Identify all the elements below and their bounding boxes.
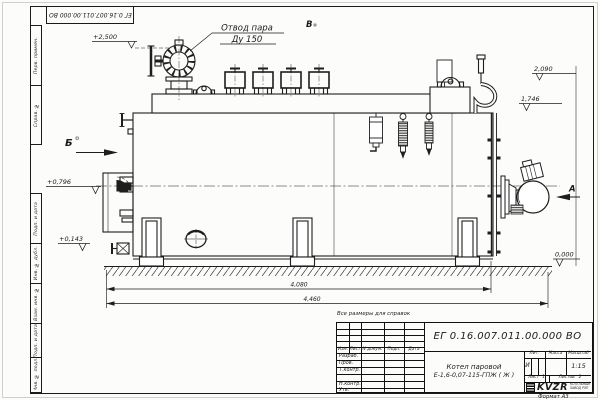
support-leg-3 <box>456 218 480 266</box>
tb-lit-value: И <box>524 358 531 375</box>
format-label: Формат А3 <box>538 394 569 400</box>
tb-line <box>531 358 532 375</box>
dome-fitting <box>194 86 215 94</box>
company-name: КОТЕЛЬНЫЙ ЗАВОД РЭП <box>570 383 590 390</box>
view-b-mark <box>76 137 78 139</box>
elevation-text: +2,500 <box>93 33 117 41</box>
tb-row-utv: Утв. <box>337 388 361 394</box>
sign-plate <box>437 60 452 87</box>
elevation-door-axis: +0,796 <box>46 178 101 194</box>
tb-line <box>337 341 424 342</box>
dim-4460-text: 4,460 <box>303 296 320 303</box>
hatch-box-1 <box>225 64 245 97</box>
tb-sheet-num: 1 <box>542 376 545 381</box>
view-v-text: В <box>306 20 312 30</box>
tb-row-razrab: Разраб. <box>337 353 361 360</box>
hatch-box-4 <box>309 64 329 97</box>
company-logo-row: KVZR КОТЕЛЬНЫЙ ЗАВОД РЭП <box>526 382 590 392</box>
view-label-a: А <box>556 185 580 201</box>
tb-sheets-num: 2 <box>579 376 582 381</box>
support-leg-1 <box>140 218 164 266</box>
tb-sheets-label: Листов <box>559 376 575 381</box>
elevation-text: 1,746 <box>521 95 540 103</box>
elevation-low-point: +0,143 <box>58 235 90 251</box>
tb-doc-number: ЕГ 0.16.007.011.00.000 ВО <box>424 323 591 351</box>
water-gauge-2 <box>399 113 408 158</box>
view-b-text: Б <box>65 138 73 149</box>
support-leg-2 <box>291 218 315 266</box>
view-label-b: Б <box>65 137 118 156</box>
water-gauge-3 <box>425 114 433 155</box>
title-block: Изм. Лист N докум. Подп. Дата Разраб. Пр… <box>336 322 593 393</box>
kvzr-logo-icon <box>526 382 535 392</box>
kvzr-logo-text: KVZR <box>537 382 568 393</box>
view-label-v: В <box>306 20 316 30</box>
view-v-mark <box>314 24 316 26</box>
elevation-dome-top: 2,090 <box>532 65 576 80</box>
steam-outlet-valve <box>148 36 196 100</box>
tb-mass-label: Масса <box>545 351 566 358</box>
tb-line <box>538 358 539 375</box>
dim-4080-text: 4,080 <box>290 282 307 289</box>
tb-scale-value: 1:15 <box>566 358 591 375</box>
tb-sheet-label: Лист <box>528 376 539 381</box>
tb-scale-label: Масштаб <box>566 351 591 358</box>
burner-assembly <box>501 158 549 218</box>
top-drum <box>152 94 455 113</box>
tb-header-data: Дата <box>404 347 424 353</box>
tb-product-code: Е-1,6-0,07-115-ГПЖ ( Ж ) <box>434 373 514 380</box>
elevation-text: 2,090 <box>534 65 553 73</box>
tb-lit-label: Лит. <box>524 351 545 358</box>
tb-header-podp: Подп. <box>384 347 404 353</box>
dimension-4460: 4,460 <box>107 272 549 308</box>
elevation-text: 0,000 <box>555 251 574 259</box>
company-line2: ЗАВОД РЭП <box>570 387 590 391</box>
hatch-box-3 <box>281 64 301 97</box>
water-gauge-1 <box>370 113 383 151</box>
elevation-text: +0,143 <box>59 235 83 243</box>
hatch-box-2 <box>253 64 273 97</box>
tb-line <box>337 335 424 336</box>
reference-note: Все размеры для справок <box>337 311 410 317</box>
tb-product-name: Котел паровой <box>447 364 502 371</box>
view-a-text: А <box>568 185 576 195</box>
rear-flange <box>488 113 501 256</box>
rear-raised-box <box>430 87 470 113</box>
elevation-text: +0,796 <box>47 178 71 186</box>
elevation-valve-top: +2,500 <box>92 33 170 48</box>
burner-motor <box>519 158 543 181</box>
ground-hatch <box>104 267 552 277</box>
tb-header-ndoc: N докум. <box>361 347 384 353</box>
tb-row-tkontr: Т.контр. <box>337 367 361 374</box>
callout-line1: Отвод пара <box>221 24 273 34</box>
steam-outlet-callout: Отвод пара Ду 150 <box>190 24 284 52</box>
callout-line2: Ду 150 <box>231 35 263 45</box>
manhole <box>184 229 208 249</box>
elevation-drum-top: 1,746 <box>519 95 562 111</box>
tb-line <box>337 329 424 330</box>
drawing-sheet: Перв. примен. Справ. № Подп. и дата Инв.… <box>0 0 600 400</box>
front-door <box>103 173 133 232</box>
tb-row-blank <box>337 374 361 381</box>
tb-row-prov: Пров. <box>337 360 361 367</box>
